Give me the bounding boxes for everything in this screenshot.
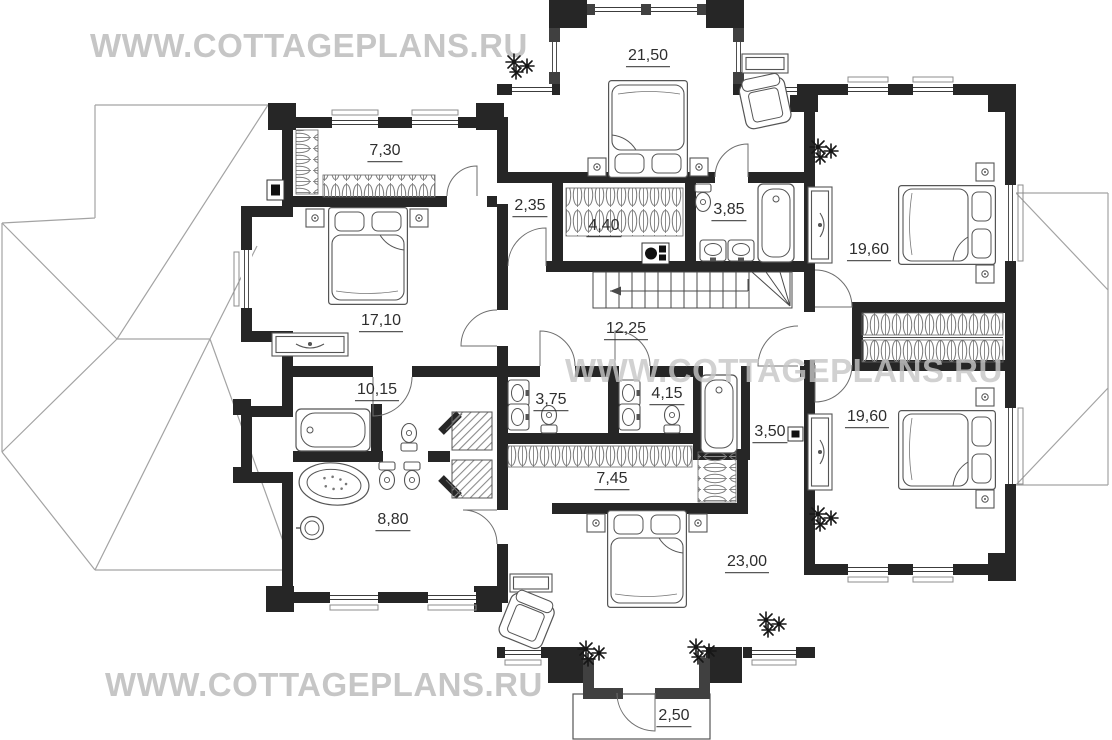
bed	[329, 208, 408, 305]
closet-rail	[698, 452, 736, 502]
toilet	[664, 406, 680, 434]
staircase	[593, 272, 792, 308]
dresser	[272, 333, 348, 356]
closet-rail	[566, 188, 683, 236]
room-label-hall-top: 2,35	[512, 197, 547, 217]
tv-console	[510, 574, 552, 592]
sink	[619, 404, 640, 430]
toilet	[379, 462, 395, 490]
toilet	[695, 184, 711, 212]
sink	[700, 240, 726, 261]
room-label-bathroom-left: 10,15	[355, 381, 399, 401]
dresser	[808, 414, 832, 490]
roof-outline-left	[2, 105, 283, 570]
room-label-hall-right: 3,50	[752, 423, 787, 443]
nightstand	[588, 158, 606, 176]
room-label-bedroom-right-bottom: 19,60	[845, 408, 889, 428]
bed	[899, 411, 996, 490]
bed	[899, 186, 996, 265]
column	[788, 427, 803, 441]
tv-console	[742, 54, 788, 73]
sink	[508, 380, 529, 406]
bathtub	[758, 184, 794, 262]
room-label-bathroom-bottom-left: 8,80	[375, 511, 410, 531]
room-label-corridor: 12,25	[604, 320, 648, 340]
floor-plan-page: WWW.COTTAGEPLANS.RU WWW.COTTAGEPLANS.RU	[0, 0, 1112, 740]
room-label-closet-top-left: 7,30	[367, 142, 402, 162]
room-label-wardrobe-top: 4,40	[586, 217, 621, 237]
plant	[758, 612, 786, 637]
room-label-balcony: 2,50	[656, 707, 691, 727]
column	[267, 180, 284, 200]
shower	[446, 412, 492, 450]
nightstand	[587, 514, 605, 532]
closet-rail	[296, 130, 318, 194]
flue	[642, 243, 669, 264]
shower	[446, 460, 492, 498]
room-label-bedroom-bottom-center: 23,00	[725, 553, 769, 573]
room-label-wc-center: 4,15	[649, 385, 684, 405]
room-label-wardrobe-bottom: 7,45	[594, 470, 629, 490]
toilet	[404, 462, 420, 490]
room-label-bedroom-top-center: 21,50	[626, 47, 670, 67]
nightstand	[690, 158, 708, 176]
nightstand	[410, 209, 428, 227]
bathtub	[296, 409, 370, 451]
closet-rail	[323, 175, 435, 197]
sink	[728, 240, 754, 261]
nightstand	[689, 514, 707, 532]
closet-rail	[508, 446, 692, 467]
closet-rail	[862, 313, 1003, 335]
nightstand	[976, 490, 994, 508]
room-label-bedroom-left: 17,10	[359, 312, 403, 332]
bed	[608, 511, 687, 608]
nightstand	[976, 163, 994, 181]
bed	[609, 81, 688, 178]
watermark-middle: WWW.COTTAGEPLANS.RU	[565, 352, 1003, 390]
toilet	[401, 424, 417, 452]
sink	[508, 404, 529, 430]
plant	[506, 54, 534, 79]
jacuzzi	[297, 460, 370, 508]
nightstand	[976, 388, 994, 406]
pedestal-sink	[296, 517, 324, 540]
room-label-wc-left: 3,75	[533, 391, 568, 411]
nightstand	[306, 209, 324, 227]
armchair	[737, 72, 792, 130]
room-label-bathroom-top: 3,85	[711, 201, 746, 221]
dresser	[808, 187, 832, 263]
nightstand	[976, 265, 994, 283]
roof-outline-right	[1016, 193, 1108, 485]
room-label-bedroom-right-top: 19,60	[847, 241, 891, 261]
